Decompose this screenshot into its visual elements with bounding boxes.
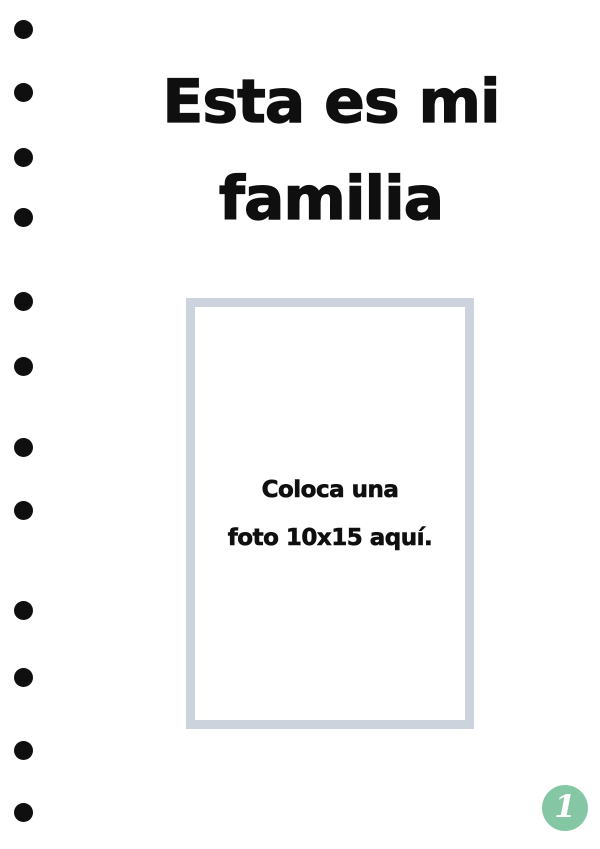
title-line-1: Esta es mi xyxy=(61,54,600,151)
binder-dot xyxy=(14,83,33,102)
page-number-badge: 1 xyxy=(542,785,588,831)
caption-line-2: foto 10x15 aquí. xyxy=(228,514,432,562)
binder-dot xyxy=(14,438,33,457)
binder-dot xyxy=(14,741,33,760)
page-title: Esta es mi familia xyxy=(61,54,600,248)
binder-dot xyxy=(14,501,33,520)
page-number: 1 xyxy=(554,792,576,823)
binder-dot xyxy=(14,803,33,822)
title-line-2: familia xyxy=(61,151,600,248)
worksheet-page: Esta es mi familia Coloca una foto 10x15… xyxy=(0,0,600,849)
binder-dot xyxy=(14,148,33,167)
binder-dot xyxy=(14,292,33,311)
binder-dot xyxy=(14,20,33,39)
photo-placeholder-frame: Coloca una foto 10x15 aquí. xyxy=(186,298,474,729)
binder-dot xyxy=(14,208,33,227)
binder-dot xyxy=(14,601,33,620)
binder-dot xyxy=(14,357,33,376)
binder-dot xyxy=(14,668,33,687)
caption-line-1: Coloca una xyxy=(228,466,432,514)
photo-placeholder-caption: Coloca una foto 10x15 aquí. xyxy=(228,466,432,562)
